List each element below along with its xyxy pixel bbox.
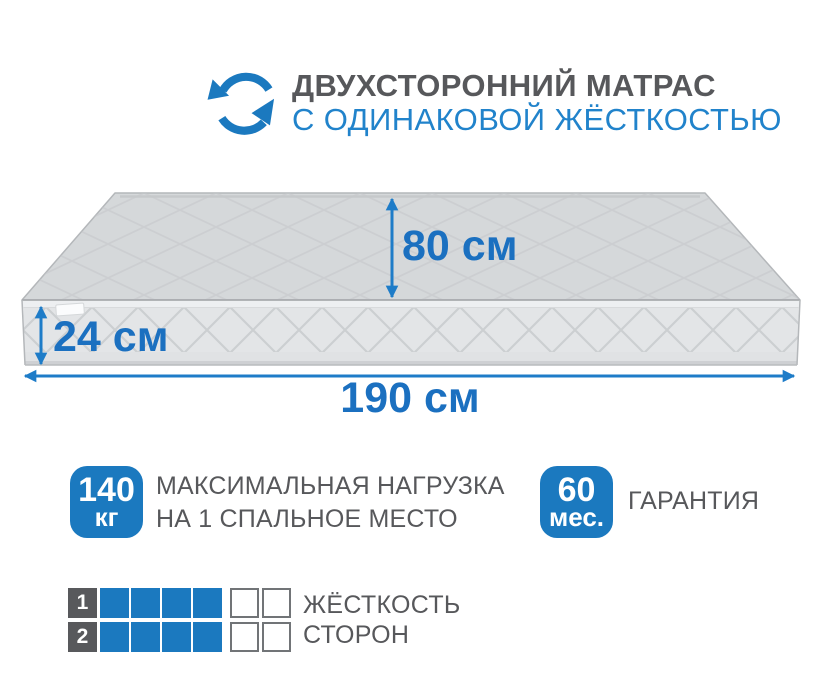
hardness-square-filled: [193, 588, 222, 618]
max-load-unit: кг: [95, 505, 119, 529]
side1-squares: [100, 588, 294, 618]
hardness-square-filled: [100, 622, 129, 652]
warranty-unit: мес.: [549, 505, 604, 529]
hardness-row-side2: 2: [68, 622, 294, 652]
max-load-label-line1: МАКСИМАЛЬНАЯ НАГРУЗКА: [156, 470, 505, 503]
hardness-label: ЖЁСТКОСТЬ СТОРОН: [303, 590, 461, 650]
side2-squares: [100, 622, 294, 652]
mattress-front-piping: [22, 300, 800, 308]
warranty-label: ГАРАНТИЯ: [628, 485, 759, 518]
max-load-value: 140: [78, 475, 135, 505]
depth-dimension-label: 80 см: [402, 222, 518, 270]
max-load-label-line2: НА 1 СПАЛЬНОЕ МЕСТО: [156, 503, 505, 536]
hardness-square-empty: [230, 622, 259, 652]
mattress-infographic: ДВУХСТОРОННИЙ МАТРАС С ОДИНАКОВОЙ ЖЁСТКО…: [0, 0, 816, 700]
max-load-label: МАКСИМАЛЬНАЯ НАГРУЗКА НА 1 СПАЛЬНОЕ МЕСТ…: [156, 470, 505, 536]
hardness-square-filled: [162, 622, 191, 652]
hardness-square-filled: [162, 588, 191, 618]
hardness-square-empty: [262, 588, 291, 618]
hardness-label-line2: СТОРОН: [303, 620, 461, 650]
side1-number: 1: [68, 588, 97, 618]
hardness-square-filled: [131, 588, 160, 618]
warranty-badge: 60 мес.: [540, 466, 613, 538]
hardness-square-empty: [230, 588, 259, 618]
hardness-label-line1: ЖЁСТКОСТЬ: [303, 590, 461, 620]
hardness-scale: 1 2: [68, 588, 294, 656]
height-dimension-label: 24 см: [53, 313, 169, 361]
mattress-illustration: 80 см 24 см 190 см: [0, 0, 816, 430]
hardness-square-empty: [262, 622, 291, 652]
warranty-value: 60: [558, 475, 596, 505]
max-load-badge: 140 кг: [70, 466, 143, 538]
side2-number: 2: [68, 622, 97, 652]
hardness-square-filled: [100, 588, 129, 618]
width-dimension-label: 190 см: [340, 374, 479, 422]
hardness-row-side1: 1: [68, 588, 294, 618]
hardness-square-filled: [131, 622, 160, 652]
hardness-square-filled: [193, 622, 222, 652]
